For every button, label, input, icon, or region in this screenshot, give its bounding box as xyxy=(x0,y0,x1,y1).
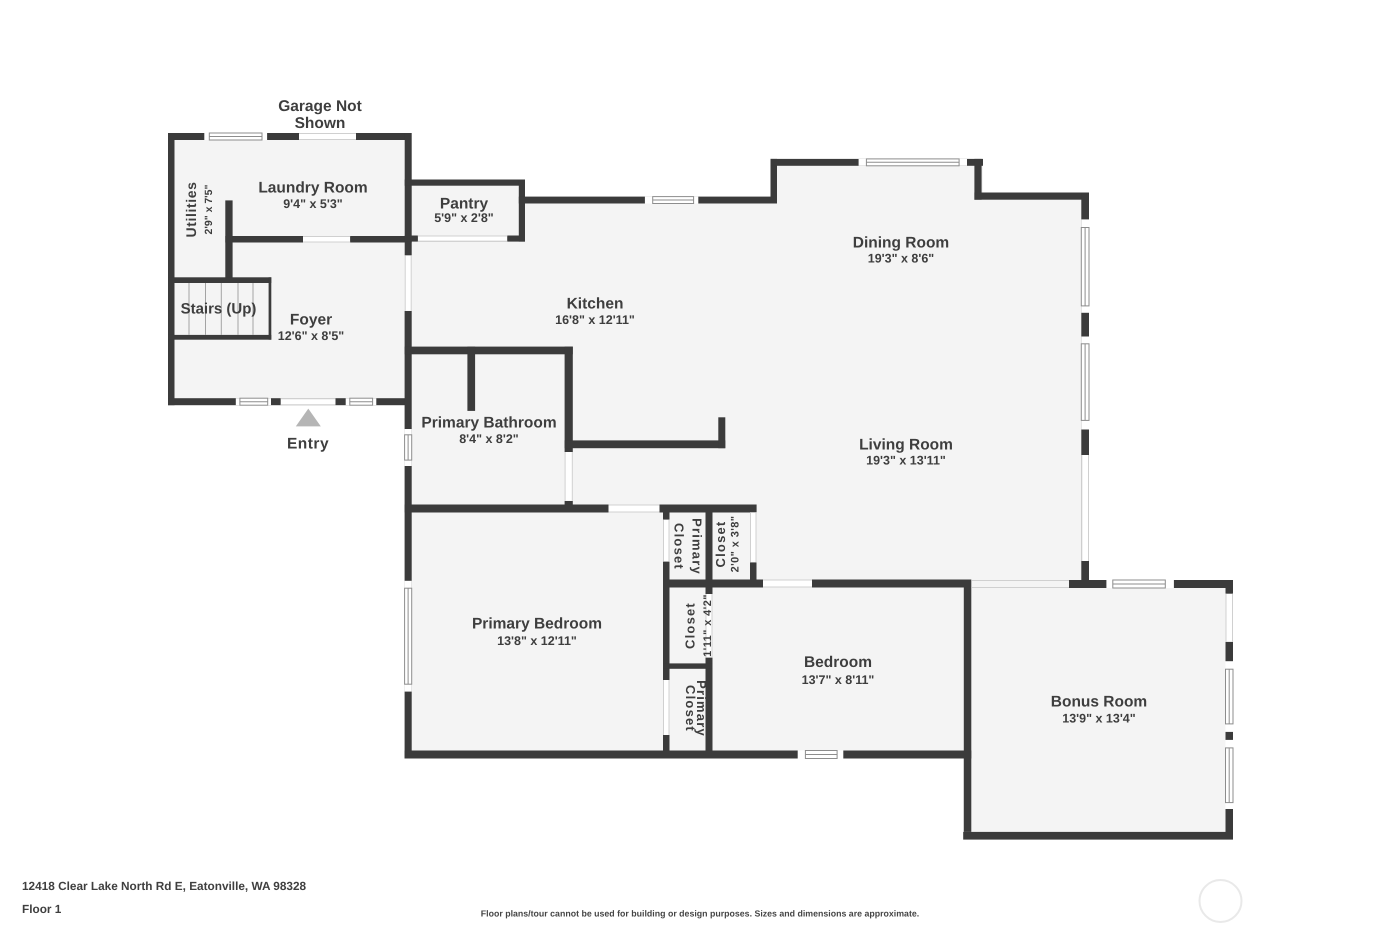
svg-text:Primary: Primary xyxy=(690,518,705,575)
svg-text:13'8" x 12'11": 13'8" x 12'11" xyxy=(497,634,577,648)
svg-text:2'9" x 7'5": 2'9" x 7'5" xyxy=(203,184,215,234)
svg-text:16'8" x 12'11": 16'8" x 12'11" xyxy=(555,313,635,327)
svg-text:Bedroom: Bedroom xyxy=(804,654,872,671)
svg-text:Garage Not: Garage Not xyxy=(278,98,362,115)
svg-text:19'3" x 8'6": 19'3" x 8'6" xyxy=(868,252,935,266)
svg-text:Dining Room: Dining Room xyxy=(853,235,949,252)
svg-text:Foyer: Foyer xyxy=(290,312,332,329)
svg-text:Primary Bedroom: Primary Bedroom xyxy=(472,616,602,633)
svg-text:19'3" x 13'11": 19'3" x 13'11" xyxy=(866,454,946,468)
svg-text:Shown: Shown xyxy=(295,115,346,132)
svg-text:Utilities: Utilities xyxy=(183,182,199,238)
svg-text:Stairs (Up): Stairs (Up) xyxy=(181,301,257,318)
svg-text:Laundry Room: Laundry Room xyxy=(258,180,367,197)
svg-text:2'0" x 3'8": 2'0" x 3'8" xyxy=(729,516,741,573)
svg-text:12418 Clear Lake North Rd E, E: 12418 Clear Lake North Rd E, Eatonville,… xyxy=(22,879,307,893)
svg-text:13'9" x 13'4": 13'9" x 13'4" xyxy=(1062,712,1135,726)
svg-text:Closet: Closet xyxy=(713,521,728,568)
svg-text:Closet: Closet xyxy=(682,602,697,649)
svg-text:Kitchen: Kitchen xyxy=(567,296,624,313)
svg-text:Closet: Closet xyxy=(672,523,687,570)
svg-text:9'4" x 5'3": 9'4" x 5'3" xyxy=(283,197,343,211)
svg-text:13'7" x 8'11": 13'7" x 8'11" xyxy=(802,673,875,687)
svg-text:Bonus Room: Bonus Room xyxy=(1051,694,1147,711)
svg-text:Floor plans/tour cannot be use: Floor plans/tour cannot be used for buil… xyxy=(481,909,919,919)
svg-text:Pantry: Pantry xyxy=(440,196,489,213)
svg-text:Living Room: Living Room xyxy=(859,437,953,454)
svg-text:Entry: Entry xyxy=(287,436,329,453)
svg-text:1'11" x 4'2": 1'11" x 4'2" xyxy=(702,594,714,657)
svg-text:12'6" x 8'5": 12'6" x 8'5" xyxy=(278,329,345,343)
svg-text:8'4" x 8'2": 8'4" x 8'2" xyxy=(459,432,519,446)
svg-text:Floor 1: Floor 1 xyxy=(22,902,62,916)
svg-text:Closet: Closet xyxy=(683,685,698,732)
svg-text:Primary Bathroom: Primary Bathroom xyxy=(421,415,556,432)
svg-text:5'9" x 2'8": 5'9" x 2'8" xyxy=(434,211,494,225)
